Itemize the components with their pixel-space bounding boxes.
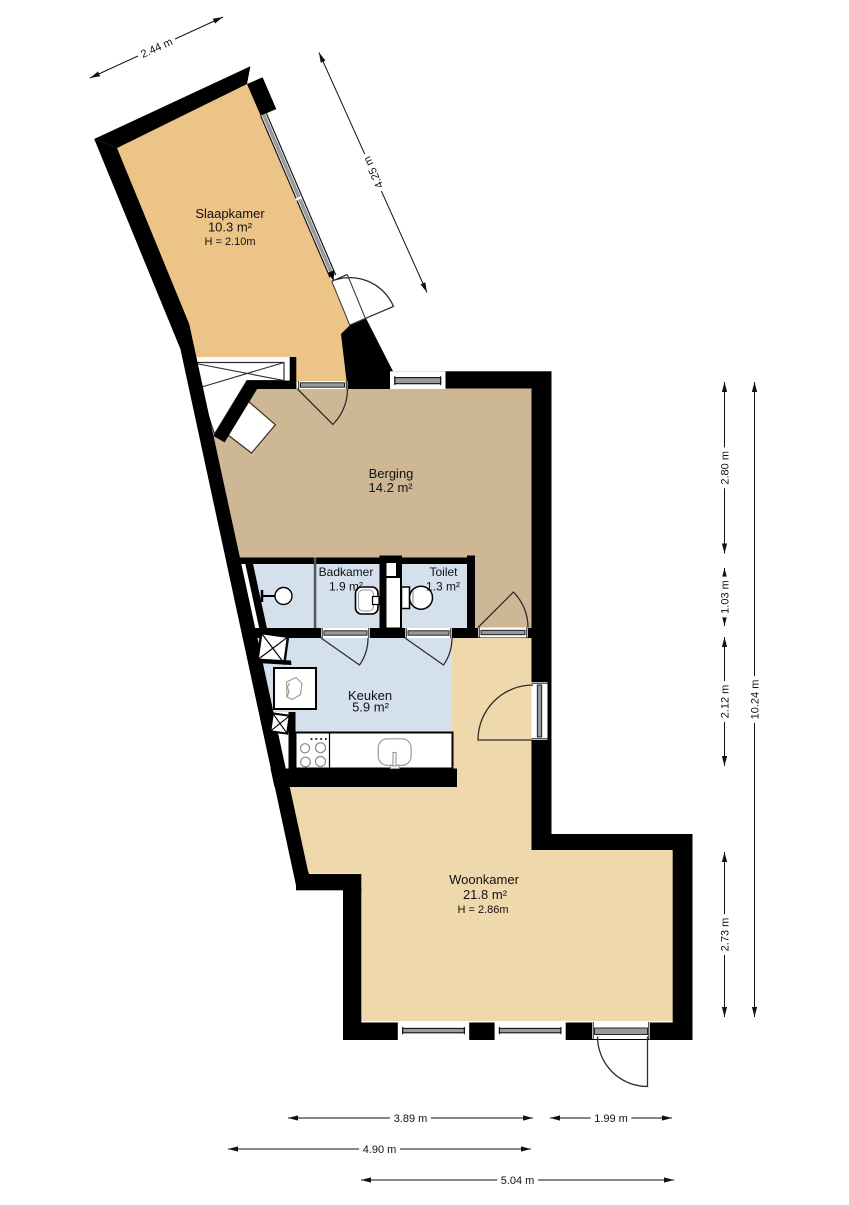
svg-text:1.03 m: 1.03 m bbox=[720, 580, 732, 614]
svg-text:2.80 m: 2.80 m bbox=[720, 451, 732, 485]
svg-text:Badkamer: Badkamer bbox=[319, 565, 374, 579]
svg-text:10.24 m: 10.24 m bbox=[750, 680, 762, 720]
svg-text:Toilet: Toilet bbox=[429, 565, 458, 579]
svg-text:2.73 m: 2.73 m bbox=[720, 918, 732, 952]
svg-text:Woonkamer: Woonkamer bbox=[449, 872, 520, 887]
svg-text:14.2 m²: 14.2 m² bbox=[369, 480, 414, 495]
svg-text:4.90 m: 4.90 m bbox=[363, 1144, 397, 1156]
svg-text:3.89 m: 3.89 m bbox=[394, 1113, 428, 1125]
svg-text:5.9 m²: 5.9 m² bbox=[352, 700, 390, 715]
svg-text:H = 2.86m: H = 2.86m bbox=[457, 904, 508, 916]
svg-text:1.99 m: 1.99 m bbox=[594, 1113, 628, 1125]
svg-text:21.8 m²: 21.8 m² bbox=[463, 887, 508, 902]
svg-text:H = 2.10m: H = 2.10m bbox=[204, 236, 255, 248]
svg-text:10.3 m²: 10.3 m² bbox=[208, 220, 253, 235]
svg-text:1.9 m²: 1.9 m² bbox=[329, 580, 363, 594]
svg-text:5.04 m: 5.04 m bbox=[501, 1175, 535, 1187]
svg-text:2.12 m: 2.12 m bbox=[720, 685, 732, 719]
svg-text:Berging: Berging bbox=[369, 466, 414, 481]
svg-text:1.3 m²: 1.3 m² bbox=[426, 580, 460, 594]
